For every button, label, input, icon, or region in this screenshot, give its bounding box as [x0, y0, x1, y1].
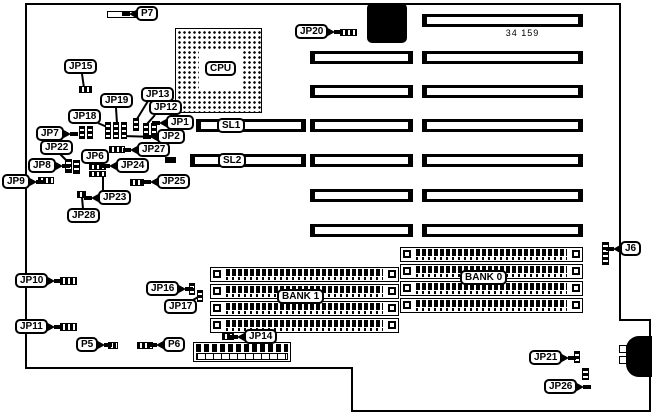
expansion-slot	[422, 154, 583, 167]
callout-jp17: JP17	[164, 299, 197, 314]
jumper-jp7	[79, 126, 85, 139]
callout-jp27: JP27	[137, 142, 170, 157]
expansion-slot	[422, 224, 583, 237]
callout-p7: P7	[136, 6, 158, 21]
callout-jp23: JP23	[98, 190, 131, 205]
callout-jp24: JP24	[116, 158, 149, 173]
jumper-jp18	[105, 122, 111, 139]
jumper-jp11	[60, 323, 77, 331]
jumper-jp20	[340, 29, 357, 36]
expansion-slot	[422, 119, 583, 132]
callout-jp12: JP12	[149, 100, 182, 115]
keyboard-connector	[626, 336, 652, 377]
bank1-label: BANK 1	[277, 289, 324, 304]
jumper-jp10	[60, 277, 77, 285]
callout-jp8: JP8	[28, 158, 56, 173]
callout-jp25: JP25	[157, 174, 190, 189]
jumper-jp19	[113, 122, 119, 139]
power-connector	[193, 342, 291, 362]
callout-jp15: JP15	[64, 59, 97, 74]
callout-jp19: JP19	[100, 93, 133, 108]
expansion-slot	[422, 189, 583, 202]
chip	[367, 3, 407, 43]
motherboard-jumper-diagram: SL1 SL2 CPU 34 159 BANK 1 BANK 0	[0, 0, 652, 416]
expansion-slot	[422, 51, 583, 64]
slot-sl2	[190, 154, 306, 167]
expansion-slot	[310, 224, 413, 237]
jumper-jp24	[89, 171, 106, 177]
callout-jp11: JP11	[15, 319, 48, 334]
jumper-jp17	[197, 290, 203, 302]
callout-jp18: JP18	[68, 109, 101, 124]
jumper-jp13	[133, 118, 139, 131]
jumper-jp15	[79, 86, 92, 93]
callout-jp1: JP1	[166, 115, 194, 130]
cpu-label: CPU	[205, 61, 236, 76]
jumper-jp2	[121, 122, 127, 139]
callout-jp7: JP7	[36, 126, 64, 141]
callout-jp10: JP10	[15, 273, 48, 288]
expansion-slot	[310, 119, 413, 132]
callout-jp16: JP16	[146, 281, 179, 296]
callout-p5: P5	[76, 337, 98, 352]
part-number: 34 159	[490, 28, 555, 38]
expansion-slot	[310, 189, 413, 202]
callout-jp22: JP22	[40, 140, 73, 155]
simm-socket	[210, 267, 399, 282]
bank0-label: BANK 0	[460, 270, 507, 285]
expansion-slot	[422, 14, 583, 27]
jumper-jp7b	[87, 126, 93, 139]
expansion-slot	[422, 85, 583, 98]
callout-jp28: JP28	[67, 208, 100, 223]
header-j6	[602, 242, 609, 265]
callout-jp9: JP9	[2, 174, 30, 189]
simm-socket	[210, 318, 399, 333]
jumper-jp8	[73, 160, 80, 174]
keyboard-pin	[619, 356, 627, 364]
callout-jp20: JP20	[295, 24, 328, 39]
callout-jp6: JP6	[81, 149, 109, 164]
keyboard-pin	[619, 345, 627, 353]
expansion-slot	[310, 154, 413, 167]
callout-p6: P6	[163, 337, 185, 352]
sl1-label: SL1	[217, 118, 245, 133]
sl2-label: SL2	[218, 153, 246, 168]
simm-socket	[400, 247, 583, 262]
callout-jp21: JP21	[529, 350, 562, 365]
simm-socket	[400, 298, 583, 313]
callout-jp26: JP26	[544, 379, 577, 394]
expansion-slot	[310, 85, 413, 98]
jumper-jp25	[130, 179, 144, 186]
jumper-jp26	[582, 368, 589, 380]
callout-j6: J6	[620, 241, 641, 256]
callout-jp14: JP14	[244, 329, 277, 344]
slot-sl1	[196, 119, 306, 132]
component-block	[165, 157, 176, 163]
expansion-slot	[310, 51, 413, 64]
